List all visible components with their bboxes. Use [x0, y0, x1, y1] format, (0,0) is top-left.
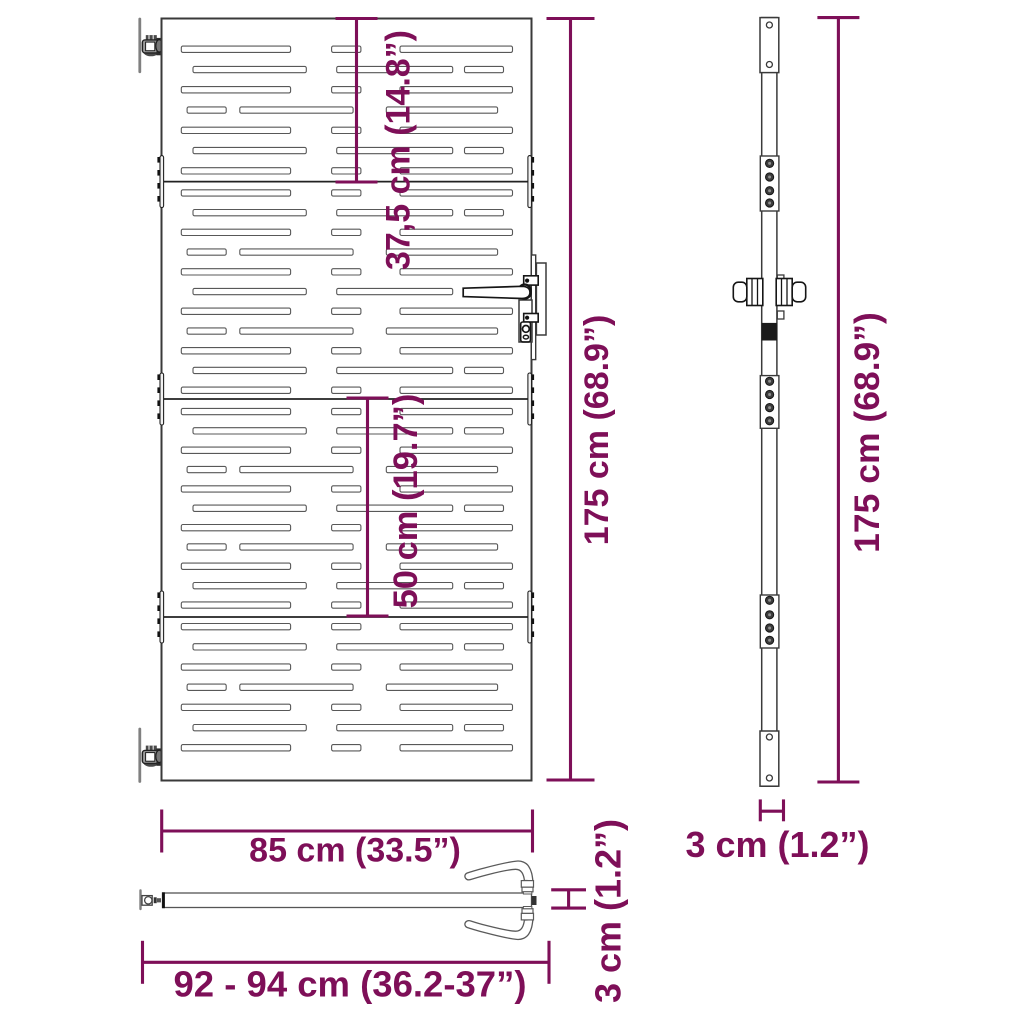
svg-text:37,5 cm (14.8”): 37,5 cm (14.8”) [380, 30, 418, 270]
svg-text:175 cm (68.9”): 175 cm (68.9”) [578, 315, 616, 546]
svg-text:92 - 94 cm (36.2-37”): 92 - 94 cm (36.2-37”) [173, 964, 526, 1005]
svg-text:85 cm (33.5”): 85 cm (33.5”) [249, 832, 461, 870]
svg-text:3 cm (1.2”): 3 cm (1.2”) [685, 824, 869, 865]
svg-text:50 cm (19.7”): 50 cm (19.7”) [387, 394, 425, 609]
svg-text:175 cm (68.9”): 175 cm (68.9”) [847, 312, 887, 553]
svg-text:3 cm (1.2”): 3 cm (1.2”) [588, 819, 629, 1003]
